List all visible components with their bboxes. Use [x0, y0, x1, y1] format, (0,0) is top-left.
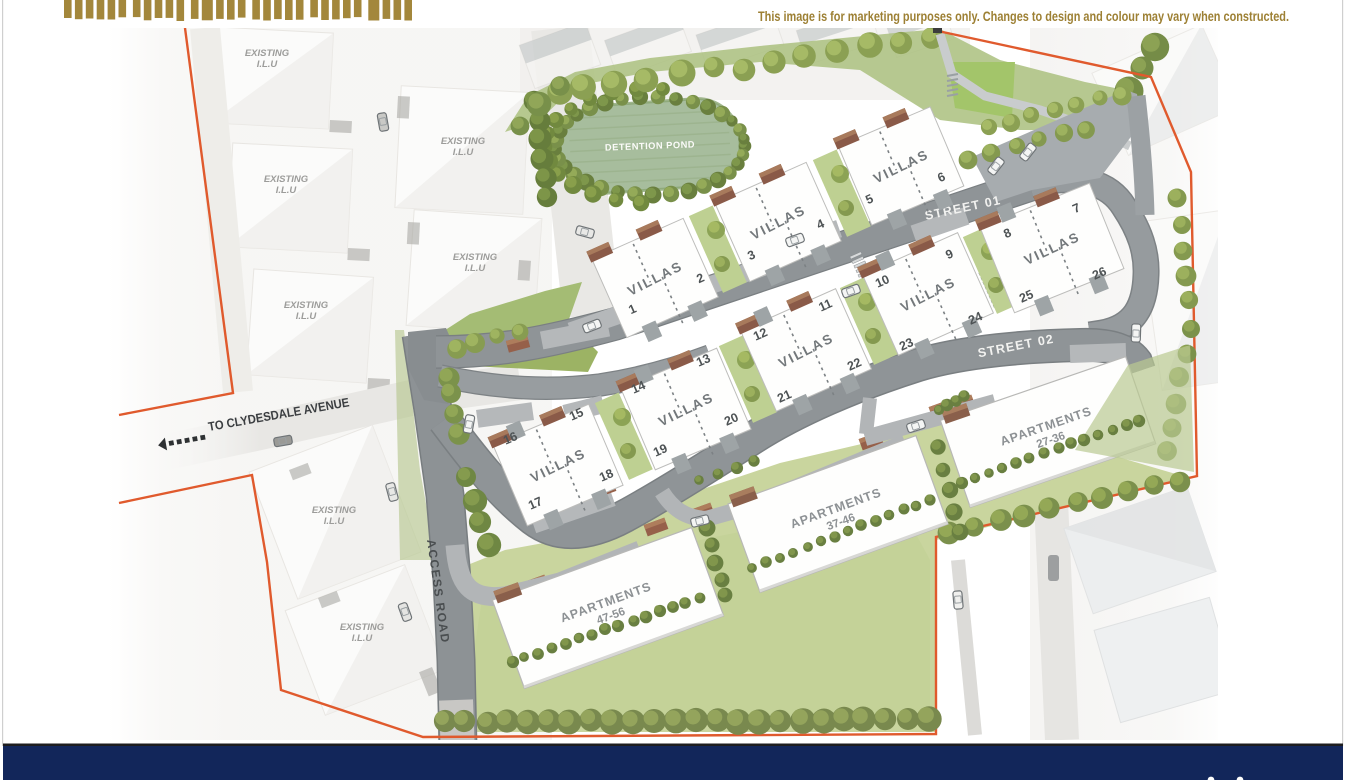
svg-text:EXISTING: EXISTING [441, 136, 486, 147]
svg-text:I.L.U: I.L.U [324, 516, 346, 527]
svg-text:EXISTING: EXISTING [284, 300, 329, 311]
svg-text:I.L.U: I.L.U [352, 633, 374, 644]
svg-text:EXISTING: EXISTING [312, 505, 357, 516]
svg-text:I.L.U: I.L.U [296, 311, 318, 322]
svg-text:EXISTING: EXISTING [264, 174, 309, 185]
svg-text:EXISTING: EXISTING [245, 48, 290, 59]
svg-text:EXISTING: EXISTING [453, 252, 498, 263]
svg-text:I.L.U: I.L.U [276, 185, 298, 196]
svg-text:I.L.U: I.L.U [257, 59, 279, 70]
svg-text:This image is for marketing pu: This image is for marketing purposes onl… [758, 9, 1289, 24]
svg-text:I.L.U: I.L.U [465, 263, 487, 274]
svg-text:EXISTING: EXISTING [340, 622, 385, 633]
svg-text:I.L.U: I.L.U [453, 147, 475, 158]
